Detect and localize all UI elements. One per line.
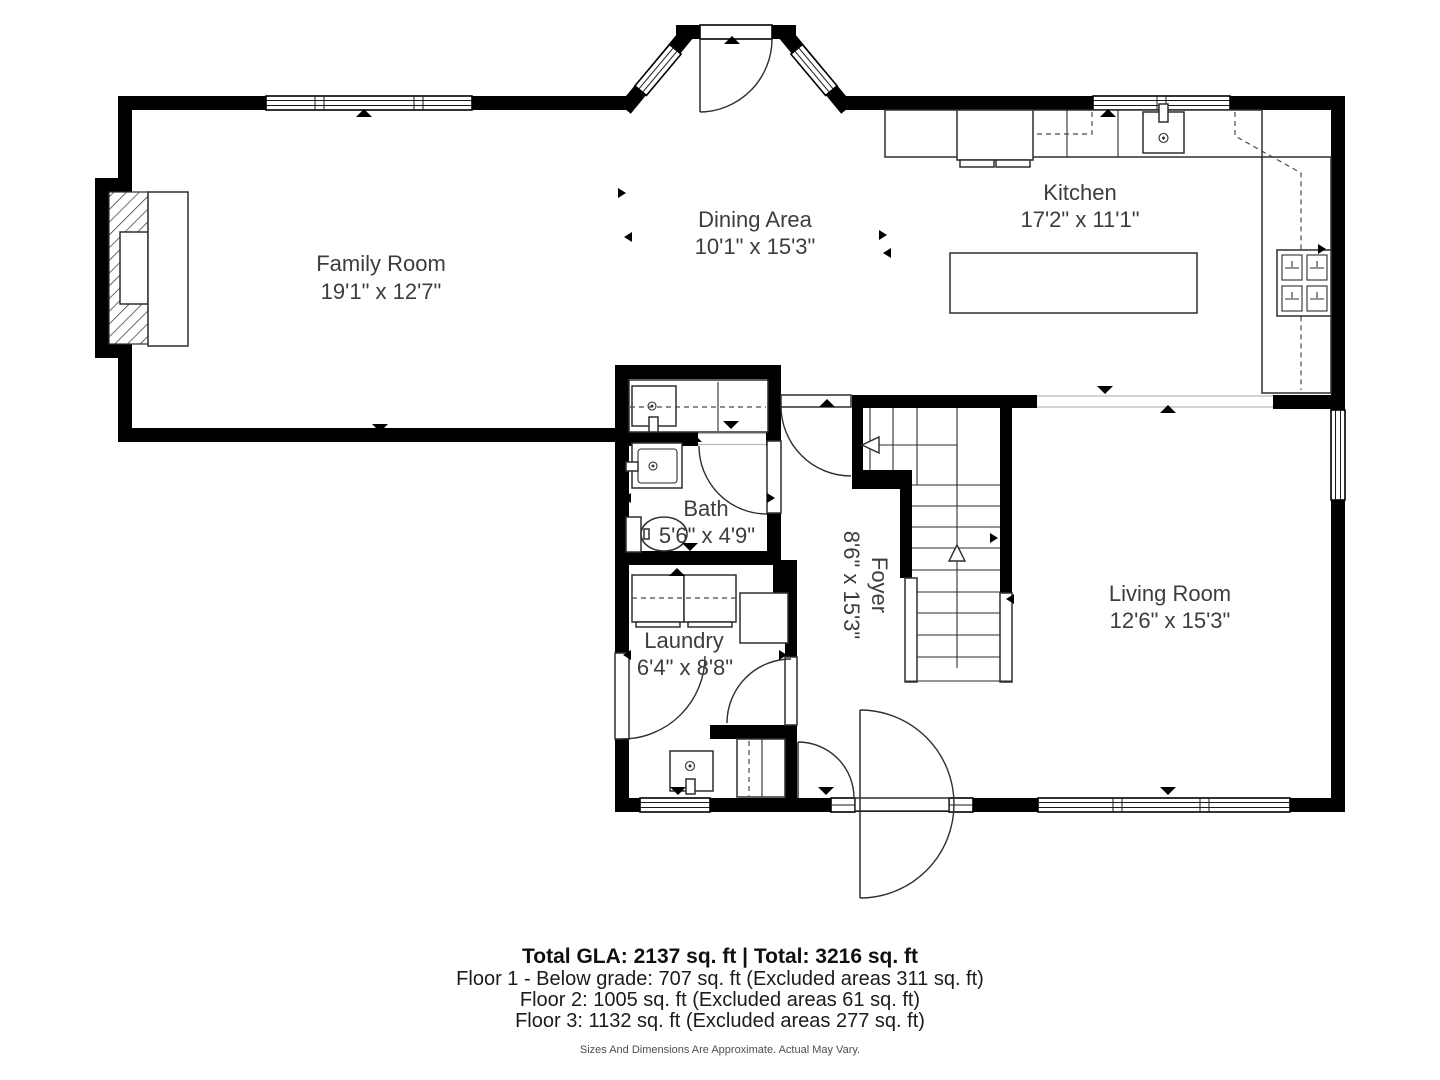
room-label-laundry: Laundry bbox=[644, 628, 724, 653]
room-dims-kitchen: 17'2" x 11'1" bbox=[1020, 207, 1139, 232]
room-dims-laundry: 6'4" x 8'8" bbox=[637, 655, 733, 680]
wall-kitchen-living-stub bbox=[1273, 395, 1345, 409]
staircase bbox=[862, 408, 1012, 682]
window-entry-sidelite-right bbox=[949, 798, 973, 812]
wall-bay-top-left bbox=[676, 25, 700, 39]
footer-disclaimer: Sizes And Dimensions Are Approximate. Ac… bbox=[580, 1044, 860, 1056]
kitchen-fixtures bbox=[885, 104, 1331, 393]
footer: Total GLA: 2137 sq. ft | Total: 3216 sq.… bbox=[456, 945, 984, 1056]
room-dims-dining: 10'1" x 15'3" bbox=[695, 234, 816, 259]
wall-foyer-left-chunk bbox=[773, 560, 797, 593]
wall-mudroom-top bbox=[615, 365, 781, 379]
laundry-foyer-door bbox=[727, 657, 797, 725]
kitchen-sink-icon bbox=[1143, 104, 1184, 153]
wall-family-bottom bbox=[118, 428, 632, 442]
footer-floor2: Floor 2: 1005 sq. ft (Excluded areas 61 … bbox=[520, 989, 920, 1011]
window-laundry-bottom bbox=[640, 798, 710, 812]
window-living-bottom-triple bbox=[1038, 798, 1290, 812]
entry-closet bbox=[737, 739, 785, 797]
room-label-dining: Dining Area bbox=[698, 207, 813, 232]
bay-door bbox=[700, 25, 772, 112]
wall-fireplace-left bbox=[95, 178, 109, 358]
wall-stairs-left bbox=[852, 395, 863, 473]
fireplace-hearth bbox=[148, 192, 188, 346]
front-door bbox=[855, 710, 954, 898]
mudroom-bath-opening bbox=[698, 432, 766, 446]
dining-foyer-door bbox=[781, 395, 851, 476]
fireplace-firebox bbox=[120, 232, 148, 304]
dryer-icon bbox=[684, 575, 736, 622]
wall-closet-right bbox=[785, 739, 797, 798]
room-dims-bath: 5'6" x 4'9" bbox=[659, 523, 755, 548]
stove-icon bbox=[1277, 250, 1331, 316]
fireplace bbox=[109, 192, 188, 346]
kitchen-living-opening bbox=[1037, 396, 1273, 407]
refrigerator-icon bbox=[957, 110, 1033, 160]
room-label-kitchen: Kitchen bbox=[1043, 180, 1116, 205]
refrigerator-door-right bbox=[996, 160, 1030, 167]
room-label-living: Living Room bbox=[1109, 581, 1231, 606]
wall-stairs-mid bbox=[900, 489, 912, 578]
wall-stairs-right bbox=[1000, 408, 1012, 593]
window-entry-sidelite-left bbox=[831, 798, 855, 812]
laundry-cabinet bbox=[740, 593, 788, 643]
floor-plan-canvas: Family Room 19'1" x 12'7" Dining Area 10… bbox=[0, 0, 1440, 1080]
stairs-arrow-up-icon bbox=[949, 545, 965, 561]
footer-floor1: Floor 1 - Below grade: 707 sq. ft (Exclu… bbox=[456, 968, 984, 990]
room-dims-living: 12'6" x 15'3" bbox=[1110, 608, 1231, 633]
window-living-right bbox=[1331, 410, 1345, 500]
wall-foyer-top bbox=[852, 395, 1037, 408]
mudroom-sink-icon bbox=[632, 386, 676, 432]
bath-vanity-sink-icon bbox=[626, 443, 682, 488]
room-label-family: Family Room bbox=[316, 251, 446, 276]
refrigerator-door-left bbox=[960, 160, 994, 167]
stairs-open-rail-right bbox=[1000, 593, 1012, 682]
wall-left-lower bbox=[118, 344, 132, 442]
room-dims-family: 19'1" x 12'7" bbox=[321, 279, 442, 304]
room-label-bath: Bath bbox=[683, 496, 728, 521]
wall-left-upper bbox=[118, 96, 132, 186]
wall-closet-top bbox=[710, 725, 797, 739]
wall-bay-top-right bbox=[772, 25, 796, 39]
footer-floor3: Floor 3: 1132 sq. ft (Excluded areas 277… bbox=[515, 1010, 925, 1032]
laundry-fixtures bbox=[632, 575, 788, 797]
kitchen-island bbox=[950, 253, 1197, 313]
room-label-foyer: Foyer bbox=[867, 557, 892, 613]
stairs-open-rail-left bbox=[905, 578, 917, 682]
mudroom-fixtures bbox=[629, 380, 768, 432]
wall-bath-laundry-divider bbox=[615, 551, 781, 565]
window-bay-right bbox=[791, 44, 837, 95]
washer-icon bbox=[632, 575, 684, 622]
wall-stairs-elbow bbox=[852, 470, 912, 489]
window-bay-left bbox=[635, 44, 681, 95]
footer-totals: Total GLA: 2137 sq. ft | Total: 3216 sq.… bbox=[522, 945, 918, 968]
window-family-triple bbox=[266, 96, 472, 110]
room-dims-foyer: 8'6" x 15'3" bbox=[839, 531, 864, 639]
floor-plan-page: Family Room 19'1" x 12'7" Dining Area 10… bbox=[0, 0, 1440, 1080]
